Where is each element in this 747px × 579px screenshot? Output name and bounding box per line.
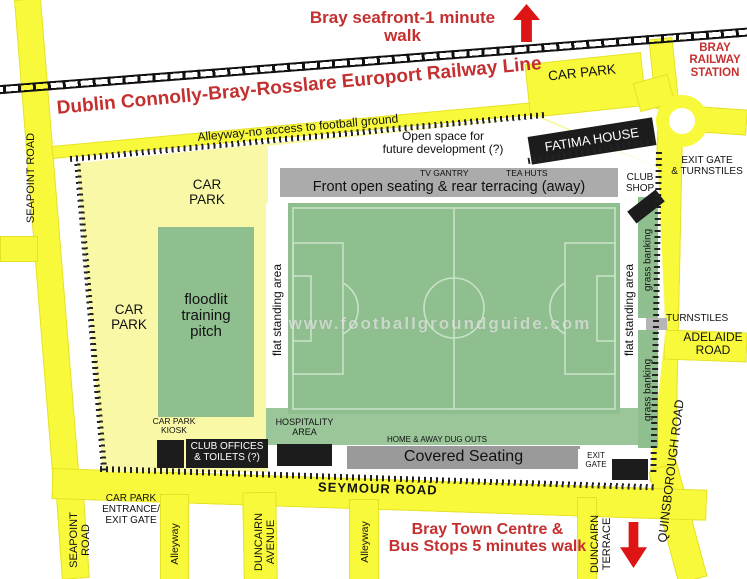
covered-seating-bar: Covered Seating [347,446,580,469]
seapoint-road-lower-label: SEAPOINT ROAD [68,508,92,572]
west-branch-road [0,236,38,262]
covered-seating-label: Covered Seating [347,448,580,465]
alleyway-south-2-label: Alleyway [359,521,371,562]
duncairn-avenue-label: DUNCAIRN AVENUE [253,509,277,575]
front-stand-bar: TV GANTRY TEA HUTS Front open seating & … [280,168,618,197]
seafront-note: Bray seafront-1 minute walk [295,9,510,46]
adelaide-road-label: ADELAIDE ROAD [678,331,747,357]
car-park-kiosk-block [157,440,184,468]
pitch [288,203,620,414]
roundabout [656,95,708,147]
tea-huts-label: TEA HUTS [506,169,548,178]
grass-banking-south-label: grass banking [643,359,654,421]
car-park-kiosk-label: CAR PARK KIOSK [145,417,203,435]
alleyway-south-1-label: Alleyway [169,523,181,564]
exit-gate-south-box: EXIT GATE [578,449,614,478]
station-car-park-block [524,52,646,118]
car-park-entrance-label: CAR PARK ENTRANCE/ EXIT GATE [92,494,170,526]
hospitality-block [277,444,332,466]
training-pitch-label: floodlit training pitch [170,292,242,341]
front-stand-label: Front open seating & rear terracing (awa… [280,180,618,196]
car-park-north-label: CAR PARK [178,178,236,207]
flat-standing-east-label: flat standing area [622,264,636,356]
watermark: www.footballgroundguide.com [289,314,592,334]
dugouts-label: HOME & AWAY DUG OUTS [387,436,487,445]
duncairn-terrace-label: DUNCAIRN TERRACE [589,512,613,576]
bray-ground-map: floodlit training pitch TV GANTRY TEA HU… [0,0,747,579]
hospitality-label: HOSPITALITY AREA [262,418,347,437]
arrow-down-icon [620,522,647,568]
pitch-markings [288,203,620,414]
town-centre-note: Bray Town Centre & Bus Stops 5 minutes w… [385,521,590,556]
club-offices-block: CLUB OFFICES & TOILETS (?) [186,439,268,468]
car-park-west-label: CAR PARK [103,303,155,332]
railway-station-label: BRAY RAILWAY STATION [683,42,747,79]
flat-standing-west-label: flat standing area [270,264,284,356]
seapoint-road-upper-label: SEAPOINT ROAD [25,133,37,223]
arrow-up-icon [513,4,540,42]
turnstiles-label: TURNSTILES [666,314,728,325]
exit-gate-south-block [612,459,648,480]
exit-gate-south-label: EXIT GATE [578,452,614,469]
tv-gantry-label: TV GANTRY [420,169,469,178]
grass-banking-north-label: grass banking [643,229,654,291]
club-offices-label: CLUB OFFICES & TOILETS (?) [186,442,268,464]
exit-gate-turnstiles-label: EXIT GATE & TURNSTILES [666,156,747,178]
